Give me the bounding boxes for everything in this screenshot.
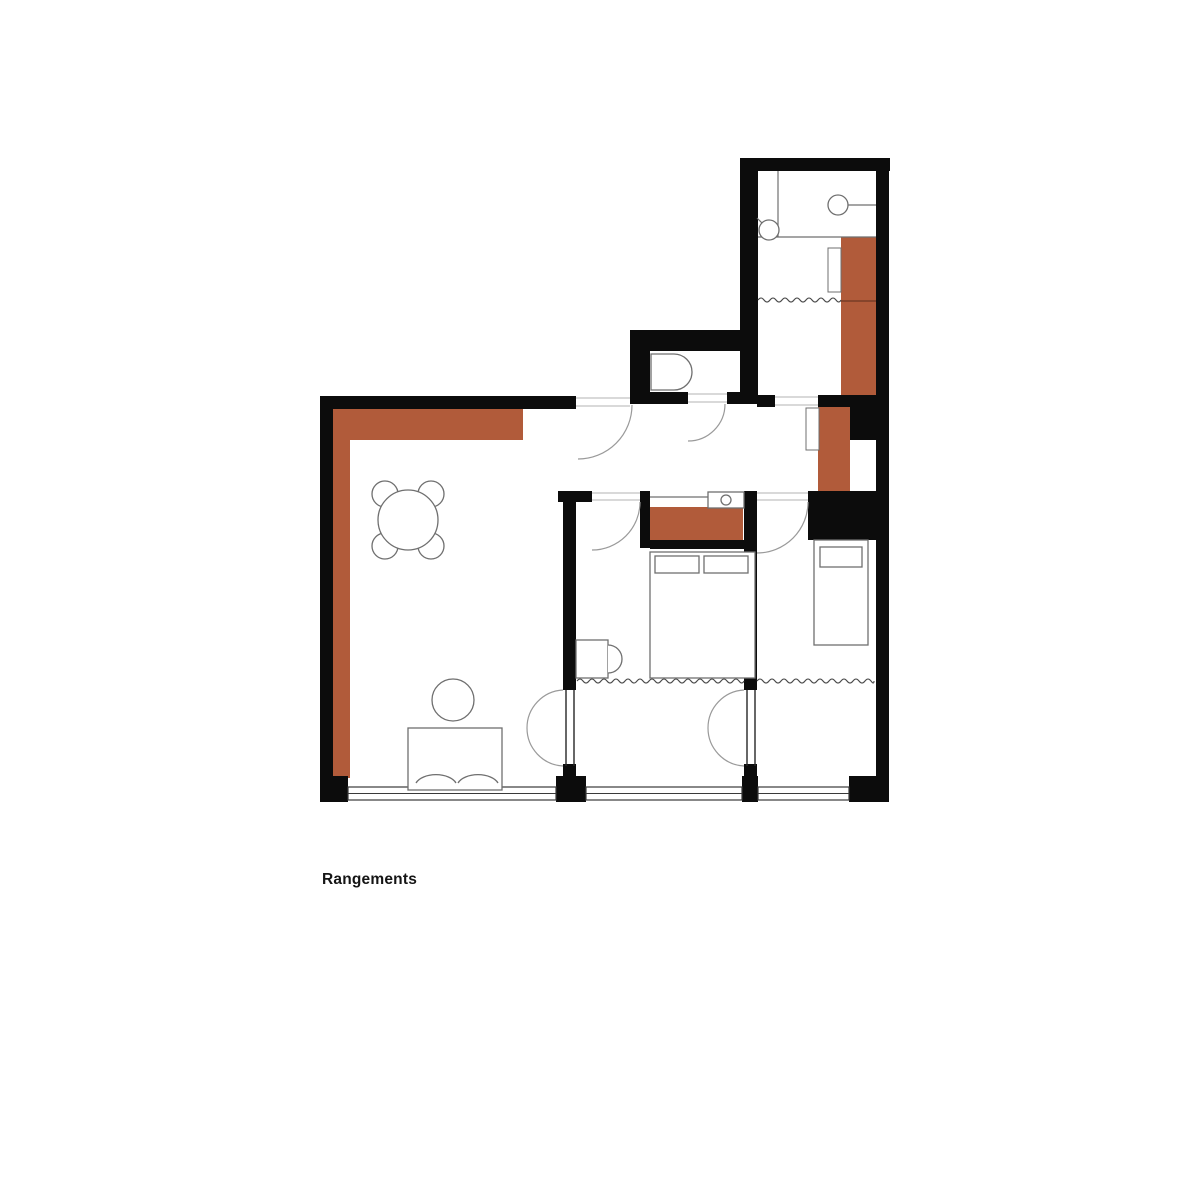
wall-partition-cap-b — [744, 764, 757, 778]
storage-bath-column — [841, 237, 876, 395]
wall-left — [320, 396, 333, 800]
plan-label-rangements: Rangements — [322, 871, 417, 889]
pillow — [704, 556, 748, 573]
door-arc-bedroom2 — [757, 502, 808, 553]
wall-bedrooms-b — [808, 491, 889, 502]
shower-valve — [759, 220, 779, 240]
door-arc-swing-a2 — [527, 728, 563, 766]
door-arc-entrance — [578, 405, 632, 459]
wall-hall-right-a — [757, 395, 775, 407]
shower-head — [828, 195, 848, 215]
wall-wardrobe-side — [850, 407, 876, 440]
wall-partition-cap-a — [563, 764, 576, 778]
curtain-bedroom1 — [577, 679, 744, 683]
door-arc-bedroom1 — [592, 502, 640, 550]
wall-living-bedroom1 — [563, 491, 576, 690]
wall-wc-bottom-b — [727, 392, 740, 404]
curtain-bedroom2 — [757, 679, 874, 683]
wall-wc-left — [630, 330, 650, 404]
wall-bedroom-divider-top — [744, 491, 757, 548]
floor-plan-page: Rangements — [0, 0, 1200, 1200]
side-table — [432, 679, 474, 721]
curtain-bath — [758, 298, 841, 302]
wall-bedroom1-jamb — [640, 491, 650, 548]
wall-corner-bottom-right — [849, 776, 889, 802]
door-arc-swing-b2 — [708, 728, 744, 766]
pillow — [820, 547, 862, 567]
wall-bath-top — [740, 158, 890, 171]
door-arc-swing-b1 — [708, 690, 744, 728]
cabinet-door-wardrobe — [806, 408, 819, 450]
wall-hall-right-b — [818, 395, 889, 407]
wall-living-top — [320, 396, 576, 409]
wall-window-pier-b — [742, 776, 758, 802]
washbasin-cabinet — [576, 640, 608, 678]
counter-sink — [721, 495, 731, 505]
wall-right — [876, 158, 889, 802]
wall-bath-left — [740, 158, 758, 404]
toilet — [651, 354, 692, 390]
washbasin-bowl — [608, 645, 622, 673]
door-arc-swing-a1 — [527, 690, 563, 728]
storage-bedroom-closet — [650, 507, 743, 540]
storage-hall-wardrobe — [818, 407, 850, 502]
wall-closet-bottom — [650, 540, 757, 549]
pillow — [655, 556, 699, 573]
cabinet-door-bath — [828, 248, 841, 292]
floor-plan — [0, 0, 1200, 1200]
wall-corner-bottom-left — [320, 776, 348, 802]
storage-living-left — [333, 440, 350, 778]
wall-window-pier-a — [556, 776, 586, 802]
wall-bedroom2-block — [808, 502, 876, 540]
door-arc-wc — [688, 404, 725, 441]
dining-table — [378, 490, 438, 550]
wall-wc-bottom-a — [650, 392, 688, 404]
storage-living-top — [333, 407, 523, 440]
